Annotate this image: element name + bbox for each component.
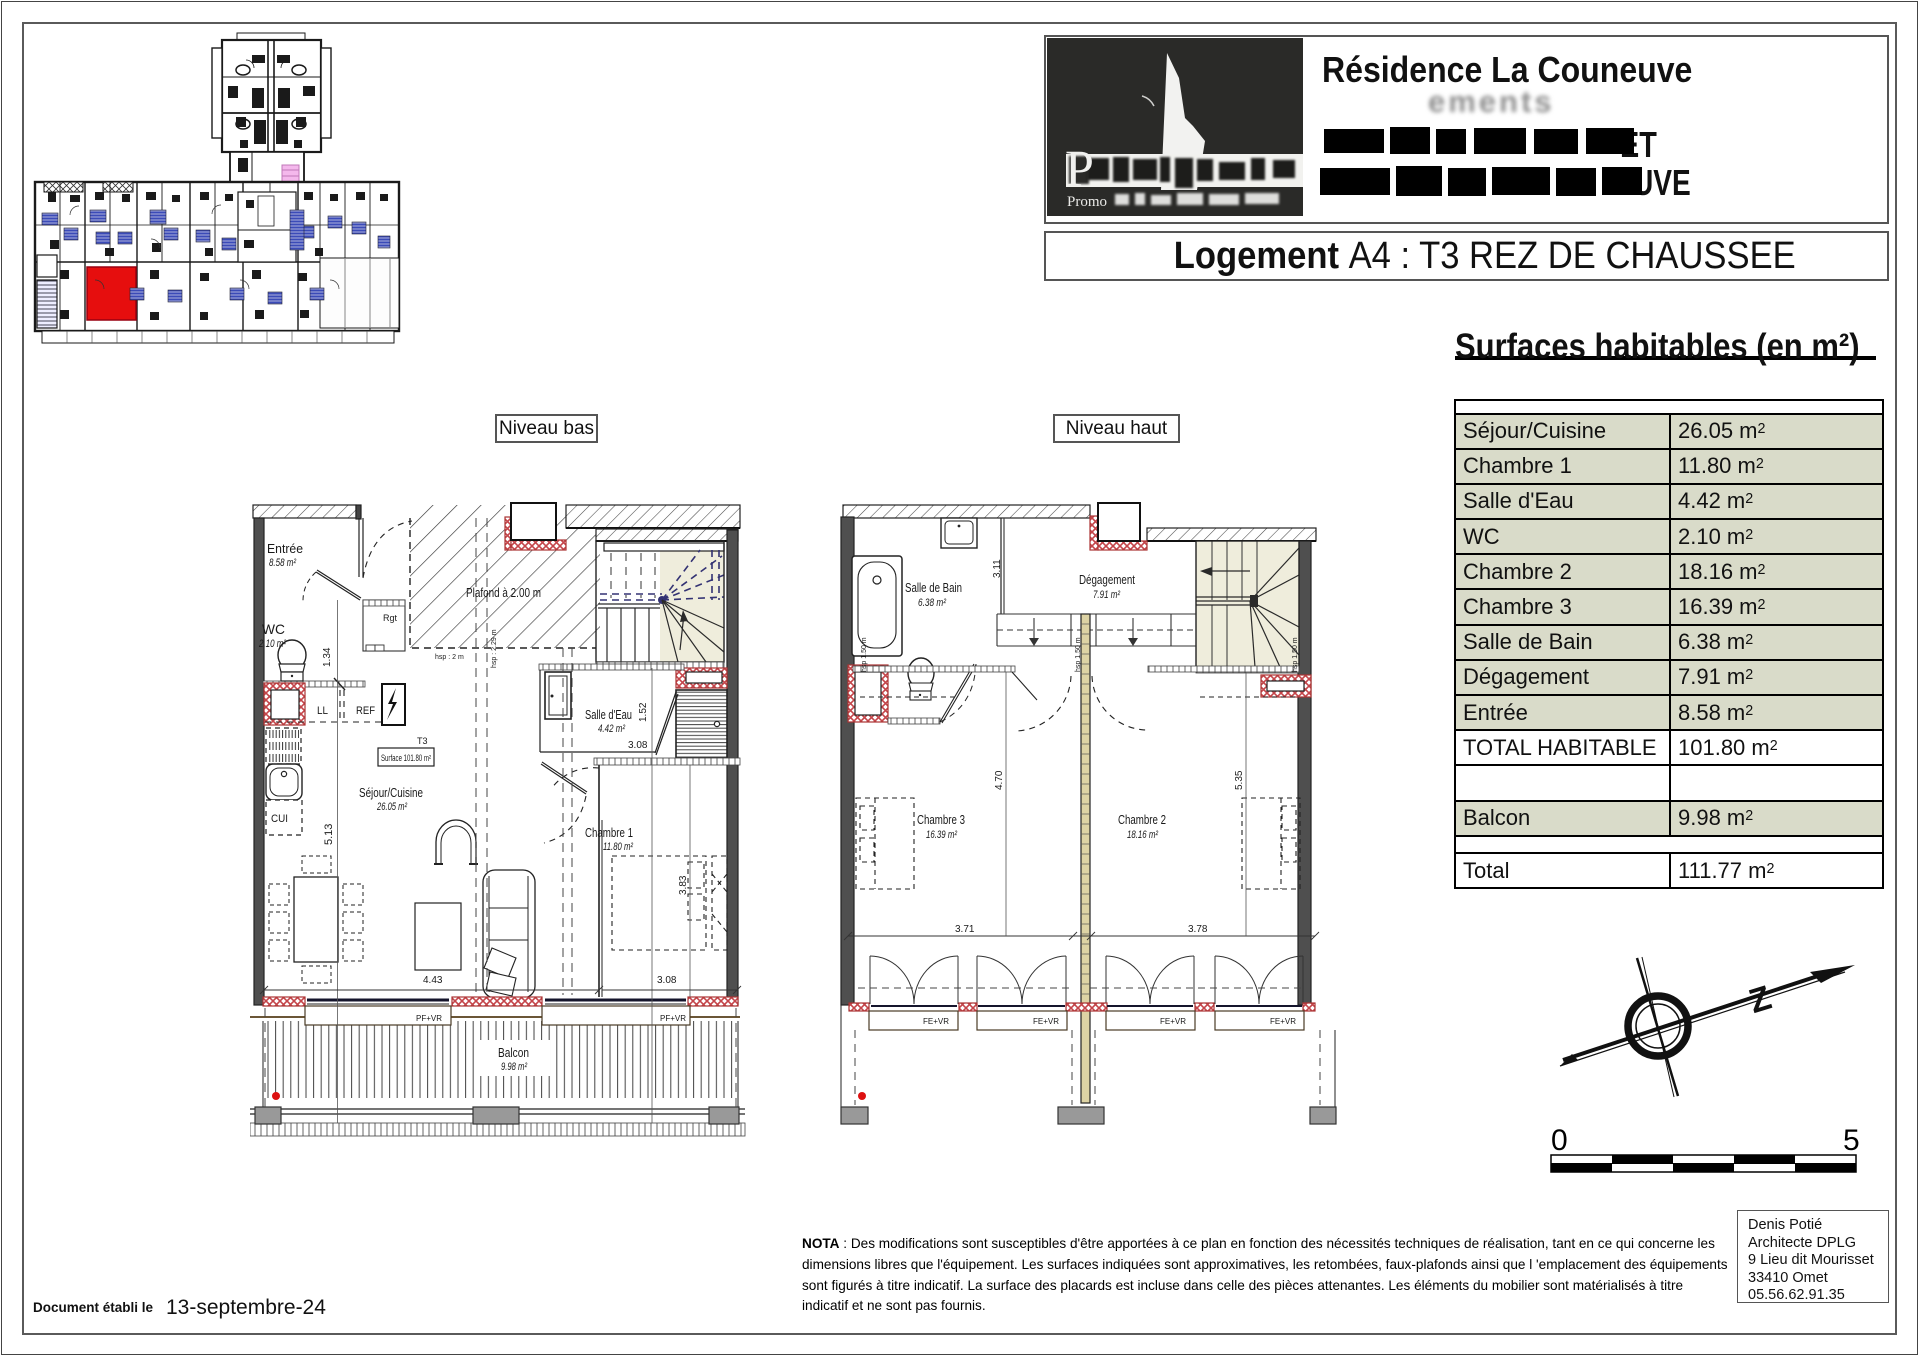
svg-text:FE+VR: FE+VR <box>1033 1017 1059 1026</box>
svg-text:18.16 m²: 18.16 m² <box>1127 829 1158 841</box>
svg-text:T3: T3 <box>417 736 428 746</box>
svg-text:PF+VR: PF+VR <box>660 1014 686 1023</box>
svg-text:PF+VR: PF+VR <box>416 1014 442 1023</box>
svg-text:Salle d'Eau: Salle d'Eau <box>585 707 632 722</box>
svg-text:REF: REF <box>356 705 375 717</box>
svg-text:Rgt: Rgt <box>383 613 398 623</box>
svg-text:CUI: CUI <box>271 813 288 825</box>
svg-text:WC: WC <box>262 621 285 637</box>
svg-text:Salle de Bain: Salle de Bain <box>905 580 962 595</box>
svg-text:3.11: 3.11 <box>992 559 1003 578</box>
svg-text:hsp : 2.29 m: hsp : 2.29 m <box>491 629 498 668</box>
svg-text:0: 0 <box>1551 1124 1568 1157</box>
svg-text:3.08: 3.08 <box>628 740 648 751</box>
svg-text:Chambre 1: Chambre 1 <box>585 825 633 840</box>
svg-text:3.71: 3.71 <box>955 924 975 935</box>
svg-text:Surface 101.80 m²: Surface 101.80 m² <box>381 753 431 763</box>
svg-text:5.13: 5.13 <box>323 824 335 845</box>
svg-text:16.39 m²: 16.39 m² <box>926 829 957 841</box>
svg-text:3.78: 3.78 <box>1188 924 1208 935</box>
svg-text:Entrée: Entrée <box>267 541 303 556</box>
svg-text:Balcon: Balcon <box>498 1045 529 1060</box>
svg-text:4.70: 4.70 <box>994 770 1005 790</box>
svg-text:3.08: 3.08 <box>657 975 677 986</box>
svg-text:hsp 1.50 m: hsp 1.50 m <box>1075 637 1082 672</box>
svg-text:FE+VR: FE+VR <box>923 1017 949 1026</box>
svg-text:8.58 m²: 8.58 m² <box>269 557 296 569</box>
svg-text:2.10 m²: 2.10 m² <box>258 638 286 650</box>
svg-text:26.05 m²: 26.05 m² <box>376 801 407 813</box>
svg-text:5: 5 <box>1843 1124 1860 1157</box>
svg-text:FE+VR: FE+VR <box>1160 1017 1186 1026</box>
svg-text:FE+VR: FE+VR <box>1270 1017 1296 1026</box>
svg-text:Séjour/Cuisine: Séjour/Cuisine <box>359 785 423 800</box>
svg-text:4.43: 4.43 <box>423 975 443 986</box>
svg-text:9.98 m²: 9.98 m² <box>501 1061 527 1073</box>
svg-text:P: P <box>1065 141 1094 198</box>
svg-text:7.91 m²: 7.91 m² <box>1093 589 1120 601</box>
svg-text:1.34: 1.34 <box>322 647 333 667</box>
svg-text:Dégagement: Dégagement <box>1079 572 1135 587</box>
svg-text:Chambre 3: Chambre 3 <box>917 812 965 827</box>
svg-text:4.42 m²: 4.42 m² <box>598 723 625 735</box>
svg-text:Promo: Promo <box>1067 194 1107 210</box>
svg-text:6.38 m²: 6.38 m² <box>918 597 946 609</box>
svg-text:5.35: 5.35 <box>1234 770 1245 790</box>
svg-text:1.52: 1.52 <box>638 702 649 722</box>
svg-text:Z: Z <box>1745 979 1776 1021</box>
svg-text:hsp : 2 m: hsp : 2 m <box>435 654 464 661</box>
svg-text:LL: LL <box>317 705 328 717</box>
svg-text:Chambre 2: Chambre 2 <box>1118 812 1166 827</box>
svg-text:3.83: 3.83 <box>678 875 689 895</box>
svg-text:11.80 m²: 11.80 m² <box>603 841 633 853</box>
svg-text:hsp 1.50 m: hsp 1.50 m <box>1292 637 1299 672</box>
svg-text:Plafond à 2.00 m: Plafond à 2.00 m <box>466 585 541 600</box>
svg-text:hsp 1.50 m: hsp 1.50 m <box>861 637 868 672</box>
